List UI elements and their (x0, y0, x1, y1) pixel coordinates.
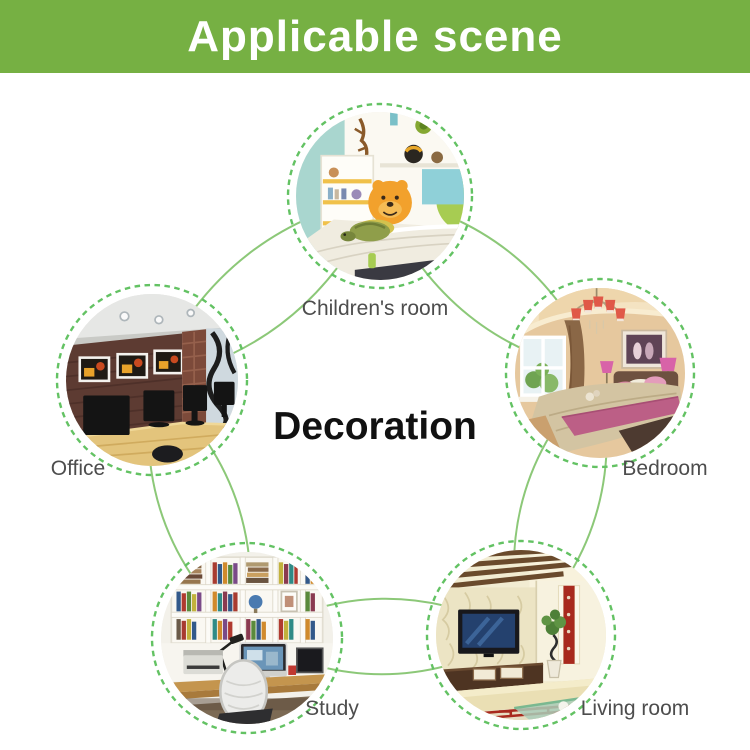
label-bedroom: Bedroom (622, 457, 707, 481)
living-room-illustration (436, 550, 606, 720)
label-living-room: Living room (581, 697, 690, 721)
label-study: Study (305, 697, 359, 721)
label-office: Office (51, 457, 105, 481)
label-childrens-room: Children's room (302, 297, 448, 321)
childrens-room-illustration (296, 112, 464, 280)
childrens-room-photo (296, 112, 464, 280)
header-banner: Applicable scene (0, 0, 750, 73)
office-photo (66, 294, 238, 466)
page-title: Applicable scene (0, 0, 750, 73)
bedroom-illustration (515, 288, 685, 458)
bedroom-photo (515, 288, 685, 458)
living-room-photo (436, 550, 606, 720)
poster: Applicable scene (0, 0, 750, 750)
office-illustration (66, 294, 238, 466)
decoration-title: Decoration (273, 405, 477, 449)
